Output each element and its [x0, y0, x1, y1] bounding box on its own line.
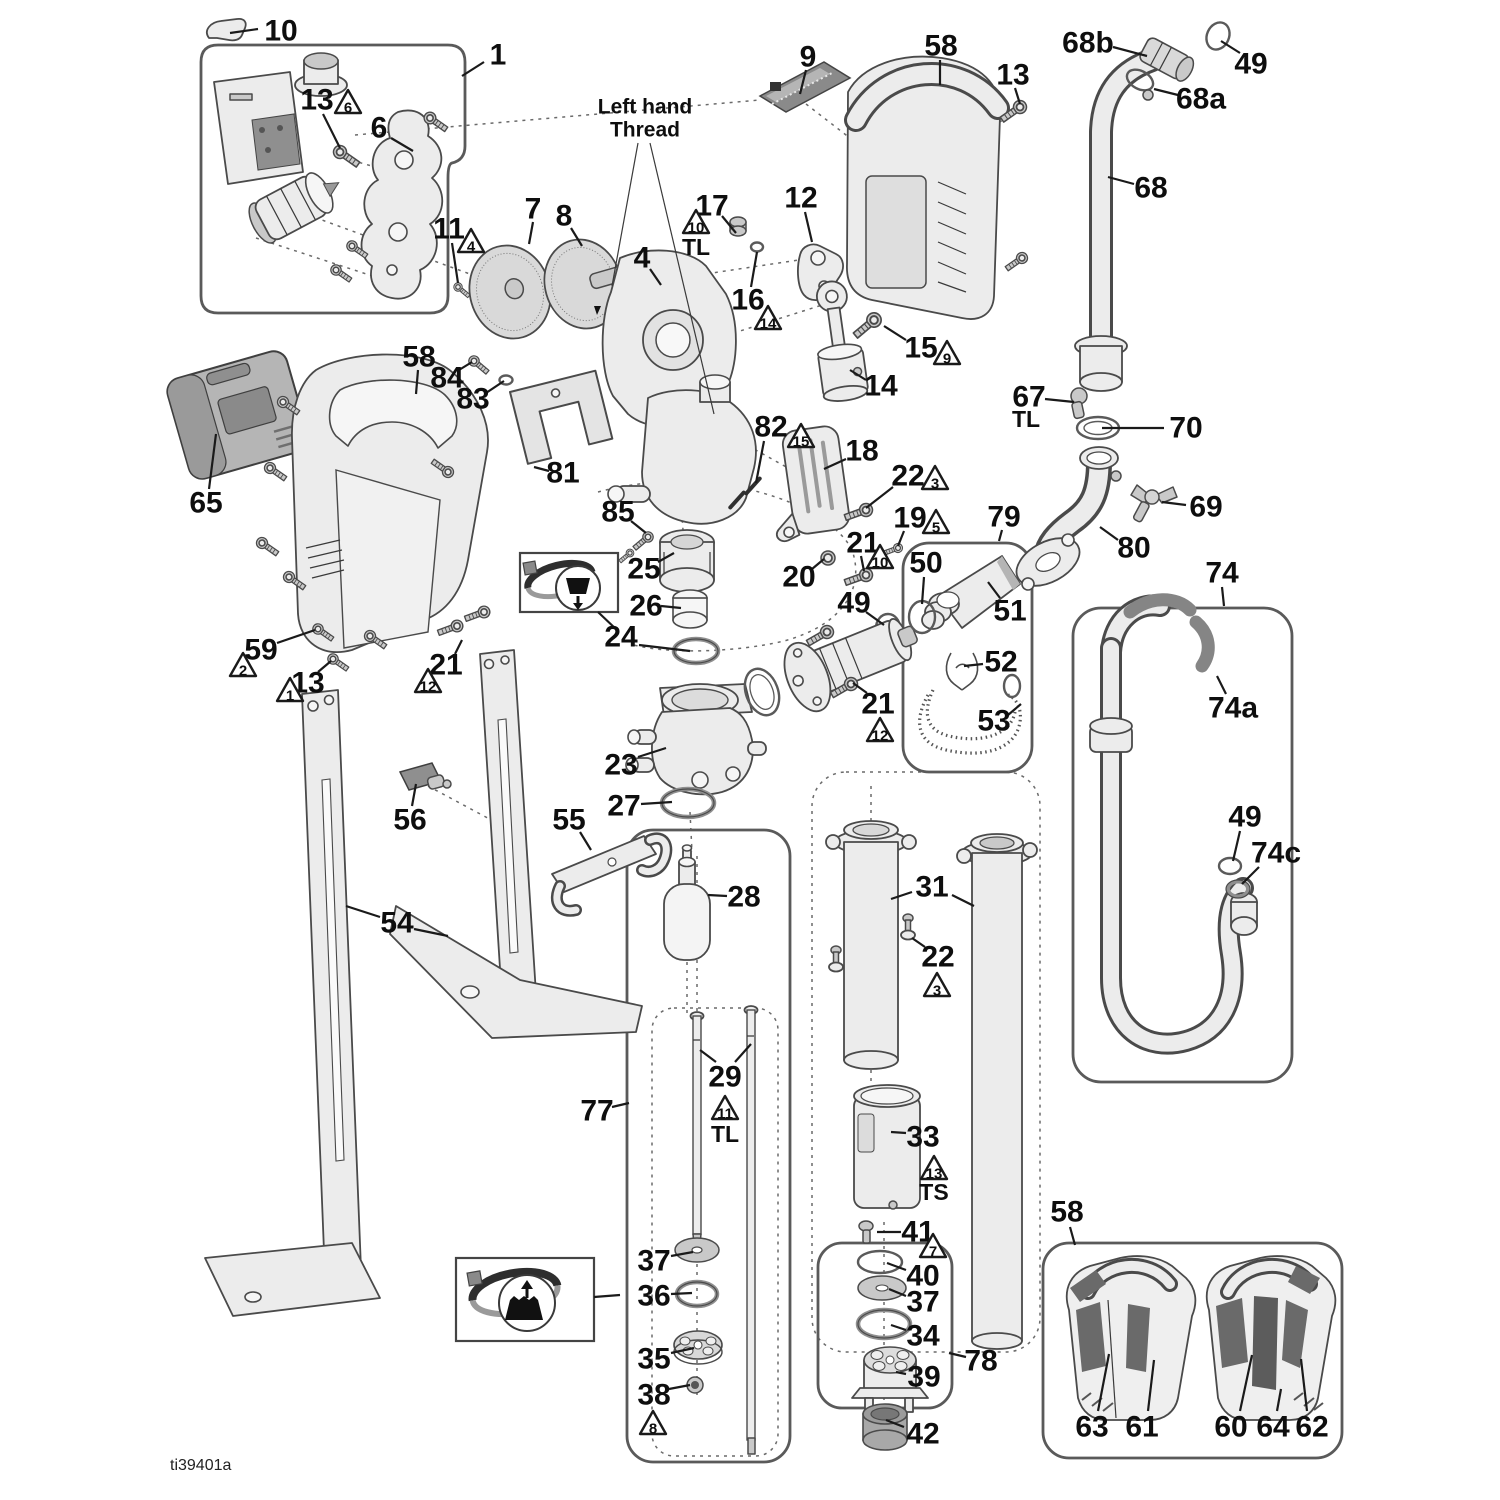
callout-number: 37 — [906, 1286, 939, 1319]
callout-number: 65 — [189, 487, 222, 520]
callout-number: 49 — [1228, 801, 1261, 834]
drawing-id: ti39401a — [170, 1457, 231, 1474]
warning-triangle-number: 5 — [932, 520, 940, 537]
part-nut-17 — [730, 217, 746, 236]
callout-number: 54 — [380, 907, 414, 940]
callout-number: 51 — [993, 595, 1026, 628]
warning-triangle-number: 8 — [649, 1421, 657, 1438]
callout-number: 1 — [490, 39, 507, 72]
callout-number: 81 — [546, 457, 579, 490]
callout-number: 19 — [893, 502, 926, 535]
callout-number: 26 — [629, 590, 662, 623]
callout-number: 63 — [1075, 1411, 1108, 1444]
callout-number: 83 — [456, 383, 489, 416]
callout-number: 6 — [371, 112, 388, 145]
exploded-parts-diagram: Left hand Thread ti39401a 10113669581368… — [0, 0, 1500, 1500]
warning-triangle-number: 4 — [467, 239, 476, 256]
callout-number: 70 — [1169, 412, 1202, 445]
callout-number: 62 — [1295, 1411, 1328, 1444]
callout-number: 21 — [429, 649, 462, 682]
warning-triangle-number: 15 — [793, 434, 810, 451]
callout-number: 74a — [1208, 692, 1258, 725]
washer-37b-hole — [876, 1285, 888, 1291]
callout-number: 64 — [1256, 1411, 1290, 1444]
callout-number: 80 — [1117, 532, 1150, 565]
svg-text:Left hand: Left hand — [598, 96, 693, 119]
warning-triangle-number: 3 — [933, 983, 941, 1000]
callout-number: 33 — [906, 1121, 939, 1154]
washer-37a-hole — [692, 1247, 702, 1253]
torque-note: TL — [711, 1121, 739, 1147]
callout-number: 22 — [891, 460, 924, 493]
part-shroud-right-view — [1207, 1256, 1336, 1420]
callout-number: 29 — [708, 1061, 741, 1094]
callout-number: 34 — [906, 1320, 940, 1353]
callout-number: 49 — [1234, 48, 1267, 81]
callout-number: 15 — [904, 332, 937, 365]
callout-number: 38 — [637, 1379, 670, 1412]
callout-number: 58 — [1050, 1196, 1083, 1229]
callout-number: 28 — [727, 881, 760, 914]
callout-number: 36 — [637, 1280, 670, 1313]
part-bushing-26 — [673, 590, 707, 628]
callout-number: 7 — [525, 193, 542, 226]
part-inlet-strainer-42 — [863, 1404, 907, 1450]
callout-number: 23 — [604, 749, 637, 782]
callout-number: 24 — [604, 621, 638, 654]
callout-number: 12 — [784, 182, 817, 215]
callout-number: 11 — [433, 213, 465, 246]
callout-number: 53 — [977, 705, 1010, 738]
callout-number: 56 — [393, 804, 426, 837]
callout-number: 68b — [1062, 27, 1114, 60]
callout-number: 69 — [1189, 491, 1222, 524]
callout-number: 52 — [984, 646, 1017, 679]
callout-number: 13 — [996, 59, 1029, 92]
warning-triangle-number: 6 — [344, 100, 352, 117]
callout-number: 18 — [845, 435, 878, 468]
callout-number: 35 — [637, 1343, 670, 1376]
warning-triangle-number: 12 — [420, 679, 437, 696]
torque-note: TS — [919, 1179, 948, 1205]
warning-triangle-number: 10 — [872, 555, 889, 572]
callout-number: 22 — [921, 941, 954, 974]
callout-number: 82 — [754, 411, 787, 444]
callout-number: 42 — [906, 1418, 939, 1451]
warning-triangle-number: 14 — [760, 316, 777, 333]
diagram-canvas: Left hand Thread ti39401a 10113669581368… — [0, 0, 1500, 1500]
callout-number: 55 — [552, 804, 585, 837]
warning-triangle-number: 11 — [717, 1106, 733, 1123]
callout-number: 20 — [782, 561, 815, 594]
callout-number: 49 — [837, 587, 870, 620]
callout-number: 59 — [244, 634, 277, 667]
callout-number: 50 — [909, 547, 942, 580]
torque-note: TL — [1012, 406, 1040, 432]
pad-61 — [1126, 1304, 1150, 1372]
torque-note: TL — [682, 234, 710, 260]
callout-number: 8 — [556, 200, 573, 233]
callout-number: 74c — [1251, 837, 1301, 870]
callout-number: 13 — [300, 84, 333, 117]
callout-number: 21 — [861, 688, 894, 721]
callout-number: 10 — [264, 15, 297, 48]
callout-number: 9 — [800, 41, 817, 74]
callout-number: 68a — [1176, 83, 1226, 116]
warning-triangle-number: 1 — [286, 688, 294, 705]
part-packing-nut-25 — [660, 530, 714, 592]
callout-number: 27 — [607, 790, 640, 823]
callout-number: 61 — [1125, 1411, 1158, 1444]
callout-number: 74 — [1205, 557, 1239, 590]
part-shroud-left-view — [1067, 1256, 1196, 1420]
callout-number: 85 — [601, 496, 634, 529]
callout-number: 68 — [1134, 172, 1167, 205]
pad-64 — [1252, 1296, 1278, 1390]
callout-number: 60 — [1214, 1411, 1247, 1444]
callout-number: 31 — [915, 871, 948, 904]
nut-38-inner — [691, 1381, 699, 1389]
callout-number: 58 — [924, 30, 957, 63]
warning-triangle-number: 12 — [872, 728, 889, 745]
nut-20-inner — [824, 554, 832, 562]
callout-number: 37 — [637, 1245, 670, 1278]
callout-number: 4 — [634, 242, 651, 275]
warning-triangle-number: 3 — [931, 476, 939, 493]
part-housing-58-top — [847, 57, 1000, 319]
callout-number: 77 — [580, 1095, 613, 1128]
warning-triangle-number: 2 — [239, 663, 247, 680]
svg-text:Thread: Thread — [610, 119, 680, 142]
callout-number: 39 — [907, 1361, 940, 1394]
callout-number: 25 — [627, 553, 660, 586]
callout-number: 78 — [964, 1345, 997, 1378]
warning-triangle-number: 9 — [943, 351, 951, 368]
callout-number: 16 — [731, 284, 764, 317]
warning-triangle-number: 7 — [929, 1244, 937, 1261]
callout-number: 79 — [987, 501, 1020, 534]
callout-number: 14 — [864, 370, 898, 403]
